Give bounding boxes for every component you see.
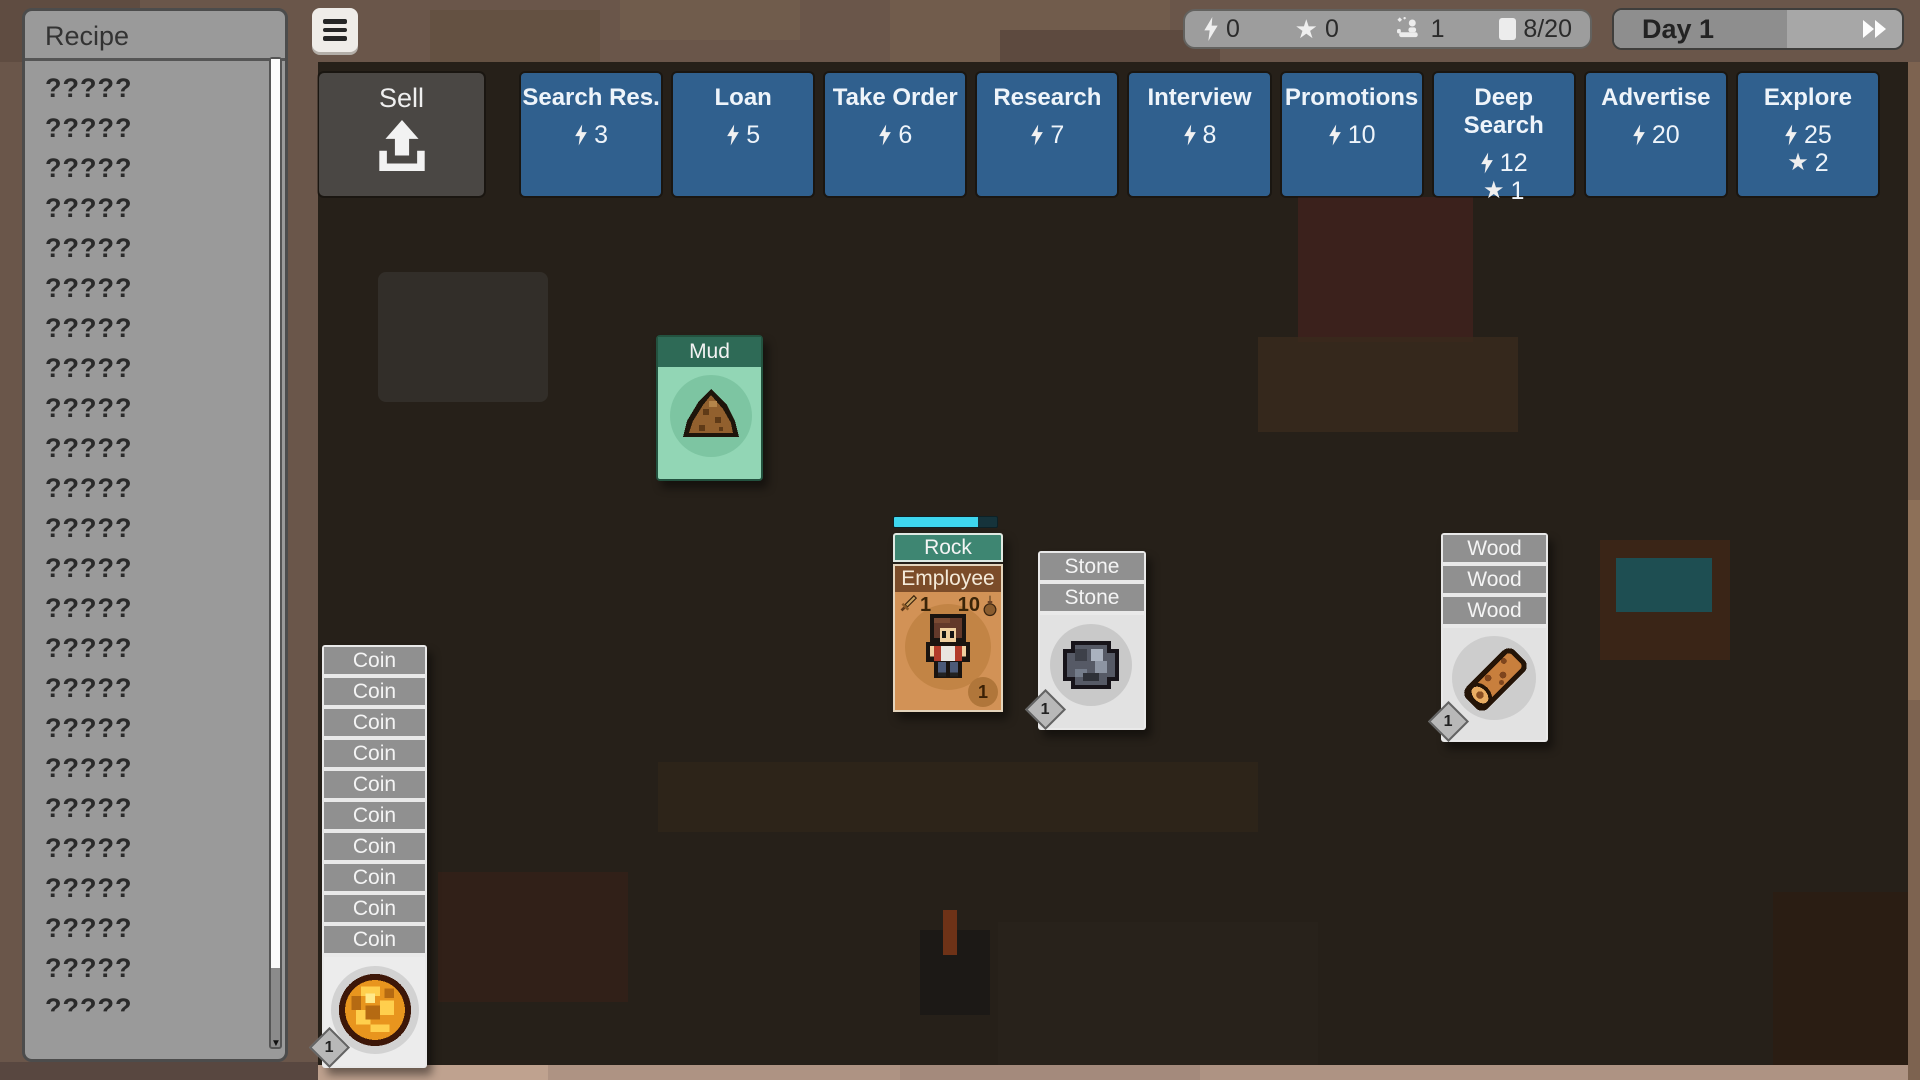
background-couch	[378, 272, 548, 402]
recipe-item[interactable]: ?????	[45, 553, 285, 593]
wood-texture-patch	[430, 10, 600, 62]
wood-texture-patch	[0, 1062, 318, 1080]
action-button-label: Interview	[1129, 84, 1269, 112]
recipe-list: ????? ????? ????? ????? ????? ????? ????…	[25, 61, 285, 1013]
background-flame	[943, 910, 957, 955]
staff-count: 1	[1431, 15, 1445, 44]
action-button[interactable]: Loan 5 ★	[673, 73, 813, 196]
stone-headers: StoneStone	[1040, 553, 1144, 611]
card-icon	[1499, 18, 1516, 40]
energy-bolt-icon	[1784, 123, 1798, 147]
card-stack-rock-employee[interactable]: Rock Employee 1 10	[893, 533, 1003, 712]
work-progress-bar	[893, 516, 998, 528]
action-energy-cost: 8	[1129, 121, 1269, 149]
energy-bolt-icon	[1480, 151, 1494, 175]
card-body: 1	[1040, 615, 1144, 728]
card-header-coin[interactable]: Coin	[324, 926, 425, 953]
action-button-label: Promotions	[1282, 84, 1422, 112]
action-energy-cost: 7	[977, 121, 1117, 149]
energy-bolt-icon	[878, 123, 892, 147]
recipe-item[interactable]: ?????	[45, 793, 285, 833]
card-header-coin[interactable]: Coin	[324, 771, 425, 798]
recipe-item[interactable]: ?????	[45, 753, 285, 793]
energy-bolt-icon	[1632, 123, 1646, 147]
recipe-item[interactable]: ?????	[45, 313, 285, 353]
employee-card-body: 1 10	[895, 592, 1001, 710]
coin-icon	[337, 972, 413, 1048]
recipe-item[interactable]: ?????	[45, 713, 285, 753]
action-button-label: Advertise	[1586, 84, 1726, 112]
action-button-label: Take Order	[825, 84, 965, 112]
card-header-stone[interactable]: Stone	[1040, 584, 1144, 611]
day-progress-bar: Day 1	[1612, 8, 1904, 50]
card-employee[interactable]: Employee 1 10	[893, 564, 1003, 712]
card-mud[interactable]: Mud	[656, 335, 763, 481]
card-body: 1	[1443, 628, 1546, 740]
energy-bolt-icon	[1030, 123, 1044, 147]
action-button-label: Search Res.	[521, 84, 661, 112]
star-count: 0	[1325, 15, 1339, 44]
right-wood-strip-patch	[1908, 500, 1920, 700]
day-label: Day 1	[1642, 14, 1714, 45]
level-badge: 1	[968, 677, 998, 707]
card-header-coin[interactable]: Coin	[324, 740, 425, 767]
background-furniture	[998, 922, 1318, 1065]
mud-pile-icon	[679, 389, 743, 441]
background-banner	[1298, 197, 1473, 342]
action-button-label: Research	[977, 84, 1117, 112]
card-header-coin[interactable]: Coin	[324, 864, 425, 891]
star-counter: ★ 0	[1295, 15, 1339, 44]
background-table-small	[438, 872, 628, 1002]
recipe-item[interactable]: ?????	[45, 193, 285, 233]
action-star-cost: ★ 2	[1738, 149, 1878, 177]
action-button-label: Deep Search	[1434, 84, 1574, 140]
recipe-item[interactable]: ?????	[45, 393, 285, 433]
wood-headers: WoodWoodWood	[1443, 535, 1546, 624]
energy-counter: 0	[1203, 15, 1240, 44]
wood-log-icon	[1456, 640, 1532, 716]
energy-bolt-icon	[1203, 16, 1219, 42]
action-energy-cost: 6	[825, 121, 965, 149]
recipe-item[interactable]: ?????	[45, 433, 285, 473]
recipe-item[interactable]: ?????	[45, 153, 285, 193]
sell-button[interactable]: Sell	[319, 73, 484, 196]
card-title: Employee	[895, 566, 1001, 592]
work-progress-fill	[894, 517, 978, 527]
action-energy-cost: 20	[1586, 121, 1726, 149]
star-icon: ★	[1295, 16, 1318, 42]
recipe-item[interactable]: ?????	[45, 233, 285, 273]
recipe-item[interactable]: ?????	[45, 593, 285, 633]
action-button-label: Loan	[673, 84, 813, 112]
card-body: 1	[324, 957, 425, 1066]
employee-character-icon	[922, 614, 974, 678]
action-energy-cost: 10	[1282, 121, 1422, 149]
action-button-label: Explore	[1738, 84, 1878, 112]
action-button[interactable]: Explore 25 ★ 2	[1738, 73, 1878, 196]
card-header-coin[interactable]: Coin	[324, 709, 425, 736]
action-button[interactable]: Interview 8 ★	[1129, 73, 1269, 196]
recipe-item[interactable]: ?????	[45, 473, 285, 513]
recipe-scrollbar[interactable]: ▼	[269, 57, 282, 1049]
action-energy-cost: 25	[1738, 121, 1878, 149]
recipe-item[interactable]: ?????	[45, 953, 285, 993]
card-stack-stone[interactable]: StoneStone 1	[1038, 551, 1146, 730]
recipe-item[interactable]: ?????	[45, 513, 285, 553]
action-button[interactable]: Search Res. 3 ★	[521, 73, 661, 196]
card-header-wood[interactable]: Wood	[1443, 535, 1546, 562]
recipe-item[interactable]: ?????	[45, 73, 285, 113]
energy-count: 0	[1226, 15, 1240, 44]
action-energy-cost: 5	[673, 121, 813, 149]
star-icon: ★	[1787, 151, 1809, 175]
sell-button-label: Sell	[319, 83, 484, 114]
card-header-coin[interactable]: Coin	[324, 678, 425, 705]
energy-bolt-icon	[1183, 123, 1197, 147]
wood-texture-patch	[620, 0, 800, 40]
card-header-wood[interactable]: Wood	[1443, 566, 1546, 593]
action-button[interactable]: Research 7 ★	[977, 73, 1117, 196]
action-button[interactable]: Take Order 6 ★	[825, 73, 965, 196]
recipe-panel: Recipe ????? ????? ????? ????? ????? ???…	[22, 8, 288, 1062]
recipe-item[interactable]: ?????	[45, 673, 285, 713]
card-header-coin[interactable]: Coin	[324, 802, 425, 829]
action-energy-cost: 12	[1434, 149, 1574, 177]
action-button[interactable]: Advertise 20 ★	[1586, 73, 1726, 196]
star-icon: ★	[1483, 179, 1505, 203]
game-screen: Recipe ????? ????? ????? ????? ????? ???…	[0, 0, 1920, 1080]
recipe-panel-title: Recipe	[25, 11, 285, 58]
card-header-wood[interactable]: Wood	[1443, 597, 1546, 624]
energy-bolt-icon	[726, 123, 740, 147]
card-header-coin[interactable]: Coin	[324, 895, 425, 922]
recipe-item[interactable]: ?????	[45, 873, 285, 913]
card-header-coin[interactable]: Coin	[324, 647, 425, 674]
energy-bolt-icon	[1328, 123, 1342, 147]
floor-strip-patch	[900, 1065, 1200, 1080]
card-stack-coin[interactable]: CoinCoinCoinCoinCoinCoinCoinCoinCoinCoin…	[322, 645, 427, 1068]
menu-button[interactable]	[312, 8, 358, 52]
recipe-item[interactable]: ?????	[45, 913, 285, 953]
staff-hand-icon	[1394, 17, 1424, 41]
action-star-cost: ★ 1	[1434, 177, 1574, 205]
background-table	[1258, 337, 1518, 432]
recipe-item[interactable]: ?????	[45, 993, 285, 1013]
background-log	[658, 762, 1258, 832]
recipe-item[interactable]: ?????	[45, 833, 285, 873]
recipe-item[interactable]: ?????	[45, 353, 285, 393]
sell-upload-icon	[376, 120, 428, 172]
fast-forward-button[interactable]	[1860, 19, 1890, 39]
card-title: Mud	[658, 337, 761, 367]
scrollbar-down-arrow-icon[interactable]: ▼	[271, 1038, 280, 1050]
action-energy-cost: 3	[521, 121, 661, 149]
background-cabinet	[1773, 892, 1908, 1065]
status-bar: 0 ★ 0 1 8/20	[1183, 9, 1592, 49]
sack-icon	[982, 594, 998, 620]
action-button[interactable]: Deep Search 12 ★ 1	[1434, 73, 1574, 196]
recipe-item[interactable]: ?????	[45, 273, 285, 313]
energy-bolt-icon	[574, 123, 588, 147]
action-button[interactable]: Promotions 10 ★	[1282, 73, 1422, 196]
scrollbar-thumb[interactable]	[271, 59, 280, 968]
staff-counter: 1	[1394, 15, 1445, 44]
background-screen	[1616, 558, 1712, 612]
action-button-row: Search Res. 3 ★ Loan 5 ★	[521, 73, 1878, 196]
sword-icon	[898, 594, 918, 614]
card-stack-wood[interactable]: WoodWoodWood 1	[1441, 533, 1548, 742]
card-counter: 8/20	[1499, 15, 1572, 44]
stone-icon	[1059, 637, 1123, 693]
recipe-item[interactable]: ?????	[45, 633, 285, 673]
card-header-rock[interactable]: Rock	[893, 533, 1003, 562]
coin-headers: CoinCoinCoinCoinCoinCoinCoinCoinCoinCoin	[324, 647, 425, 953]
recipe-item[interactable]: ?????	[45, 113, 285, 153]
card-count: 8/20	[1523, 15, 1572, 44]
card-header-stone[interactable]: Stone	[1040, 553, 1144, 580]
card-header-coin[interactable]: Coin	[324, 833, 425, 860]
